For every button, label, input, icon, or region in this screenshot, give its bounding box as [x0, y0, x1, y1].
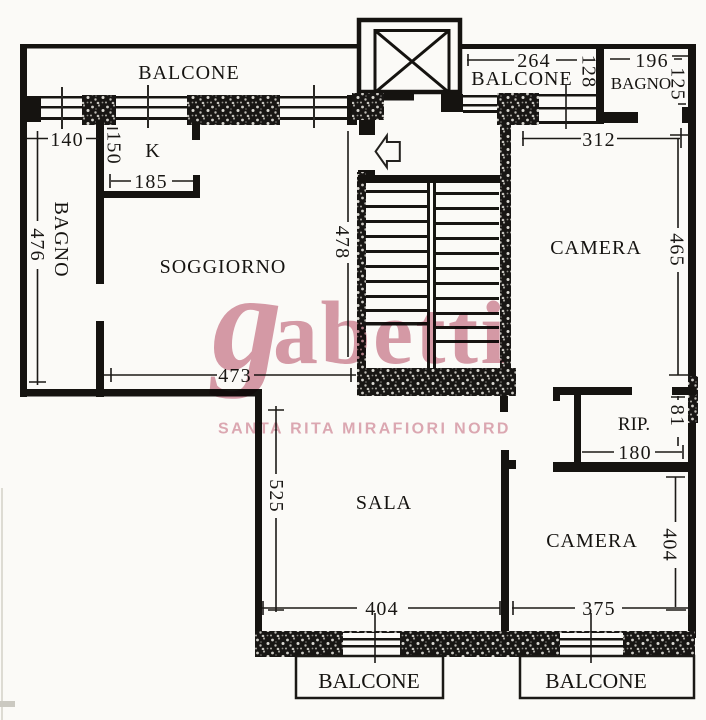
svg-text:BAGNO: BAGNO: [50, 201, 72, 277]
svg-text:81: 81: [666, 405, 688, 427]
svg-text:404: 404: [365, 598, 399, 620]
svg-text:SANTA RITA MIRAFIORI NORD: SANTA RITA MIRAFIORI NORD: [218, 421, 511, 438]
svg-text:264: 264: [517, 50, 551, 72]
svg-text:K: K: [145, 140, 160, 162]
svg-text:CAMERA: CAMERA: [546, 530, 638, 552]
svg-text:SALA: SALA: [356, 492, 412, 514]
svg-text:140: 140: [50, 129, 84, 151]
svg-text:476: 476: [26, 228, 48, 262]
svg-text:BALCONE: BALCONE: [545, 669, 647, 693]
svg-text:196: 196: [635, 50, 669, 72]
svg-text:185: 185: [134, 171, 168, 193]
svg-text:465: 465: [666, 233, 688, 267]
svg-text:BAGNO: BAGNO: [611, 74, 671, 93]
svg-text:CAMERA: CAMERA: [550, 237, 642, 259]
svg-text:BALCONE: BALCONE: [318, 669, 420, 693]
svg-text:abetti: abetti: [273, 284, 508, 383]
svg-text:150: 150: [103, 131, 125, 165]
svg-text:g: g: [209, 245, 282, 400]
svg-text:404: 404: [659, 528, 681, 562]
svg-text:RIP.: RIP.: [618, 414, 650, 435]
svg-text:125: 125: [667, 67, 689, 101]
svg-text:375: 375: [582, 598, 616, 620]
svg-text:128: 128: [578, 55, 600, 89]
svg-text:478: 478: [331, 226, 353, 260]
svg-text:BALCONE: BALCONE: [138, 62, 239, 84]
svg-text:312: 312: [582, 129, 616, 151]
svg-text:180: 180: [618, 442, 652, 464]
svg-text:525: 525: [265, 479, 287, 513]
